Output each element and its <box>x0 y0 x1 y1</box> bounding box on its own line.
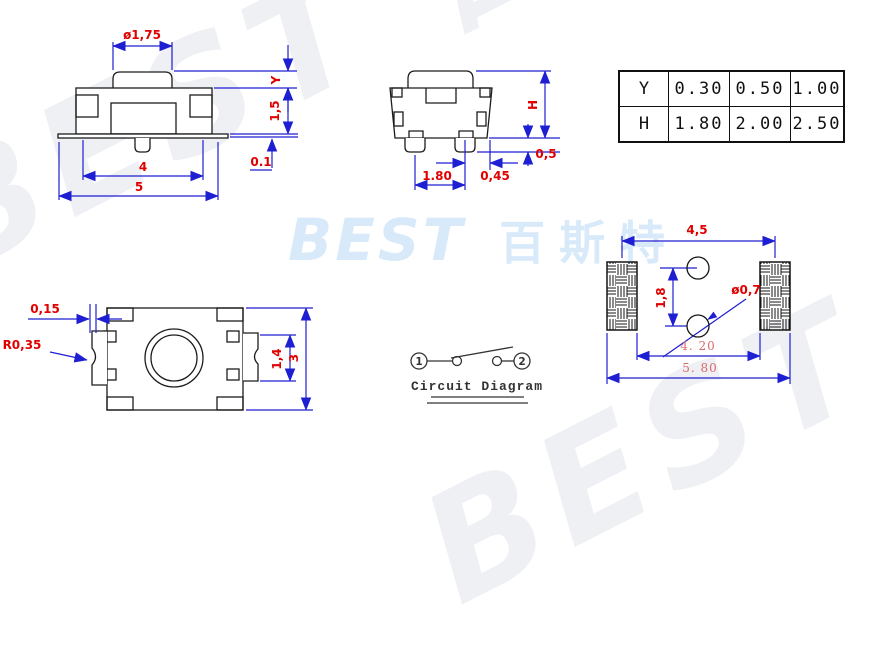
footprint-leader-arrowhead <box>707 312 717 320</box>
drawing-canvas: ø1,75 Y 1,5 0.1 4 5 H 0,5 1.80 0,45 <box>0 0 879 453</box>
top-body-outline <box>107 308 243 410</box>
spec-value-y-1: 0.30 <box>669 71 730 107</box>
side-left-leg <box>405 138 425 152</box>
dim-label-overtravel: Y <box>269 75 283 85</box>
front-base-plate <box>58 134 228 138</box>
top-leader-notch-radius <box>50 352 87 360</box>
side-view: H 0,5 1.80 0,45 <box>390 71 560 190</box>
dim-label-total-width: 5 <box>135 180 143 194</box>
dim-label-inner-width: 4 <box>139 160 147 174</box>
dim-label-height: H <box>526 100 540 110</box>
dim-label-leg-offset: 0,45 <box>480 169 510 183</box>
dim-label-hole-pitch: 1,8 <box>654 287 668 308</box>
dim-label-leg-pitch: 1.80 <box>422 169 452 183</box>
dim-label-outer-span: 5. 80 <box>682 361 718 375</box>
top-view: 0,15 R0,35 1,4 3 <box>3 302 313 410</box>
top-right-terminal <box>243 333 258 381</box>
circuit-switch-arm <box>451 347 513 358</box>
dim-label-leg-height: 0,5 <box>535 147 556 161</box>
dim-label-body-depth: 3 <box>287 354 301 362</box>
spec-value-h-3: 2.50 <box>791 107 845 143</box>
dim-label-standoff: 0.1 <box>250 155 271 169</box>
spec-table-row-y: Y 0.30 0.50 1.00 <box>619 71 844 107</box>
spec-row-label-y: Y <box>619 71 669 107</box>
circuit-terminal-2-label: 2 <box>518 356 525 368</box>
side-button-outline <box>408 71 473 88</box>
dim-label-inner-span: 4. 20 <box>680 339 716 353</box>
spec-row-label-h: H <box>619 107 669 143</box>
spec-value-h-2: 2.00 <box>730 107 791 143</box>
front-view: ø1,75 Y 1,5 0.1 4 5 <box>58 28 298 200</box>
front-button-outline <box>113 72 172 88</box>
circuit-diagram: 1 2 Circuit Diagram <box>411 347 543 403</box>
dim-label-notch-depth: 0,15 <box>30 302 60 316</box>
spec-value-y-3: 1.00 <box>791 71 845 107</box>
spec-table: Y 0.30 0.50 1.00 H 1.80 2.00 2.50 <box>618 70 845 143</box>
dim-label-notch-radius: R0,35 <box>3 338 42 352</box>
dim-label-button-dia: ø1,75 <box>123 28 161 42</box>
circuit-caption-underlines <box>427 397 528 403</box>
front-center-pin <box>135 138 150 152</box>
spec-table-row-h: H 1.80 2.00 2.50 <box>619 107 844 143</box>
dim-label-body-height: 1,5 <box>268 100 282 121</box>
circuit-contact-right <box>493 357 502 366</box>
top-left-terminal <box>92 331 107 385</box>
spec-value-h-1: 1.80 <box>669 107 730 143</box>
circuit-terminal-1-label: 1 <box>415 356 422 368</box>
dim-label-hole-dia: ø0,7 <box>731 283 761 297</box>
dim-label-pad-pitch: 4,5 <box>686 223 707 237</box>
dim-label-terminal-height: 1,4 <box>270 348 284 369</box>
footprint-view: 4,5 1,8 ø0,7 4. 20 5. 80 <box>607 223 790 384</box>
footprint-right-pad <box>760 262 790 330</box>
spec-value-y-2: 0.50 <box>730 71 791 107</box>
circuit-caption: Circuit Diagram <box>411 379 543 394</box>
tact-switch-drawing-sheet: { "watermarks": { "background_text": "BE… <box>0 0 879 453</box>
footprint-hole-bottom <box>687 315 709 337</box>
footprint-left-pad <box>607 262 637 330</box>
